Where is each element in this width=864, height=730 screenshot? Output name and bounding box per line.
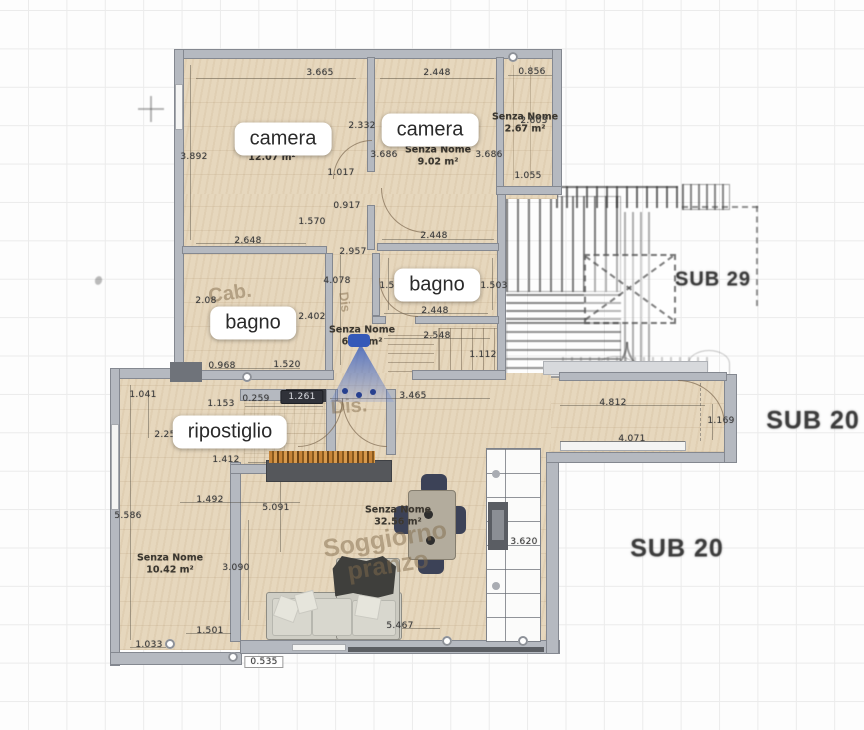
- dimension-label: 1.501: [196, 626, 223, 636]
- cone-camera-body: [348, 334, 370, 347]
- dimension-label: 1.412: [212, 455, 239, 465]
- wall: [325, 253, 333, 371]
- cone-dot: [370, 389, 376, 395]
- cone-dot: [356, 392, 362, 398]
- wall: [110, 652, 242, 665]
- dimension-label: 0.856: [518, 67, 545, 77]
- room-label-camera-1: camera: [235, 123, 332, 156]
- sketch-dashed-right: [756, 206, 758, 306]
- floor-plan-image: 3.6652.4480.8562.3323.8923.6863.6861.017…: [0, 0, 864, 730]
- dimension-label: 2.448: [423, 68, 450, 78]
- room-label-camera-2: camera: [382, 114, 479, 147]
- dimension-label: 5.586: [114, 511, 141, 521]
- bookshelf-books: [269, 451, 375, 463]
- window: [111, 424, 119, 510]
- room-label-bagno-2: bagno: [394, 269, 480, 302]
- dimension-label: 3.686: [370, 150, 397, 160]
- dimension-label: 3.686: [475, 150, 502, 160]
- wall: [546, 452, 736, 463]
- faded-room-text: Dis: [336, 291, 353, 313]
- dimension-line: [196, 78, 356, 79]
- room-area-label: Senza Nome32.56 m²: [365, 505, 431, 530]
- dimension-label: 3.090: [222, 563, 249, 573]
- dimension-label: 2.957: [339, 247, 366, 257]
- cadastral-label: SUB 29: [675, 269, 751, 292]
- measure-node: [228, 652, 238, 662]
- dimension-label: 2.448: [420, 231, 447, 241]
- dimension-label: 1.570: [298, 217, 325, 227]
- wall: [546, 452, 559, 654]
- dimension-label: 0.535: [245, 657, 282, 667]
- measure-node: [508, 52, 518, 62]
- dimension-label: 1.112: [469, 350, 496, 360]
- elevator-shaft-box: [584, 254, 676, 324]
- dimension-label: 2.448: [421, 306, 448, 316]
- dimension-label: 1.033: [135, 640, 162, 650]
- wall: [230, 462, 241, 642]
- dimension-label: 3.892: [180, 152, 207, 162]
- cadastral-label: SUB 20: [630, 535, 724, 564]
- measure-node: [518, 636, 528, 646]
- dimension-label: 0.259: [242, 394, 269, 404]
- wall: [415, 316, 499, 324]
- wall-junction-block: [170, 362, 202, 382]
- window: [292, 644, 346, 651]
- kitchen-knob: [492, 470, 500, 478]
- dimension-label: 5.467: [386, 621, 413, 631]
- sofa-pillow: [354, 594, 381, 620]
- dimension-label: 1.503: [480, 281, 507, 291]
- dimension-label: 2.08: [195, 296, 216, 306]
- dimension-label: 1.041: [129, 390, 156, 400]
- dimension-label: 4.071: [618, 434, 645, 444]
- bookshelf: [266, 460, 392, 482]
- kitchen-knob: [492, 582, 500, 590]
- dimension-label: 1.520: [273, 360, 300, 370]
- room-label-bagno-1: bagno: [210, 307, 296, 340]
- wall: [367, 205, 375, 250]
- room-area-label: Senza Nome10.42 m²: [137, 553, 203, 578]
- measure-node: [242, 372, 252, 382]
- wall: [182, 246, 327, 254]
- dimension-label: 2.402: [298, 312, 325, 322]
- measure-node: [165, 639, 175, 649]
- sofa-cushion: [312, 598, 352, 636]
- dimension-label: 1.169: [707, 416, 734, 426]
- dimension-label: 1.492: [196, 495, 223, 505]
- dimension-label: 3.665: [306, 68, 333, 78]
- wall: [412, 370, 506, 380]
- wall: [110, 368, 178, 379]
- dimension-label: 3.465: [399, 391, 426, 401]
- room-area-label: Senza Nome9.02 m²: [405, 145, 471, 170]
- wall: [372, 316, 386, 324]
- dimension-label: 1.017: [327, 168, 354, 178]
- kitchen-appliance: [488, 502, 508, 550]
- window: [175, 84, 183, 130]
- appliance-door: [492, 510, 504, 540]
- pencil-tick: [150, 96, 152, 122]
- dimension-label: 4.078: [323, 276, 350, 286]
- dimension-label: 2.332: [348, 121, 375, 131]
- dimension-label: 1.153: [207, 399, 234, 409]
- dimension-label: 5.091: [262, 503, 289, 513]
- dimension-label: 2.548: [423, 331, 450, 341]
- cone-dot: [342, 388, 348, 394]
- dimension-label: 4.812: [599, 398, 626, 408]
- window-dark-band: [348, 647, 544, 652]
- wall: [377, 243, 499, 251]
- wall: [559, 372, 727, 381]
- dimension-label: 1.261: [281, 391, 322, 403]
- dimension-label: 2.603: [520, 116, 547, 126]
- dimension-label: 0.917: [333, 201, 360, 211]
- sketch-dashed-top: [682, 206, 758, 208]
- dimension-label: 1.055: [514, 171, 541, 181]
- dimension-label: 3.620: [510, 537, 537, 547]
- room-label-ripostiglio: ripostiglio: [173, 416, 287, 449]
- cadastral-label: SUB 20: [766, 407, 860, 436]
- dimension-label: 2.648: [234, 236, 261, 246]
- dimension-label: 0.968: [208, 361, 235, 371]
- dimension-line: [380, 78, 494, 79]
- measure-node: [442, 636, 452, 646]
